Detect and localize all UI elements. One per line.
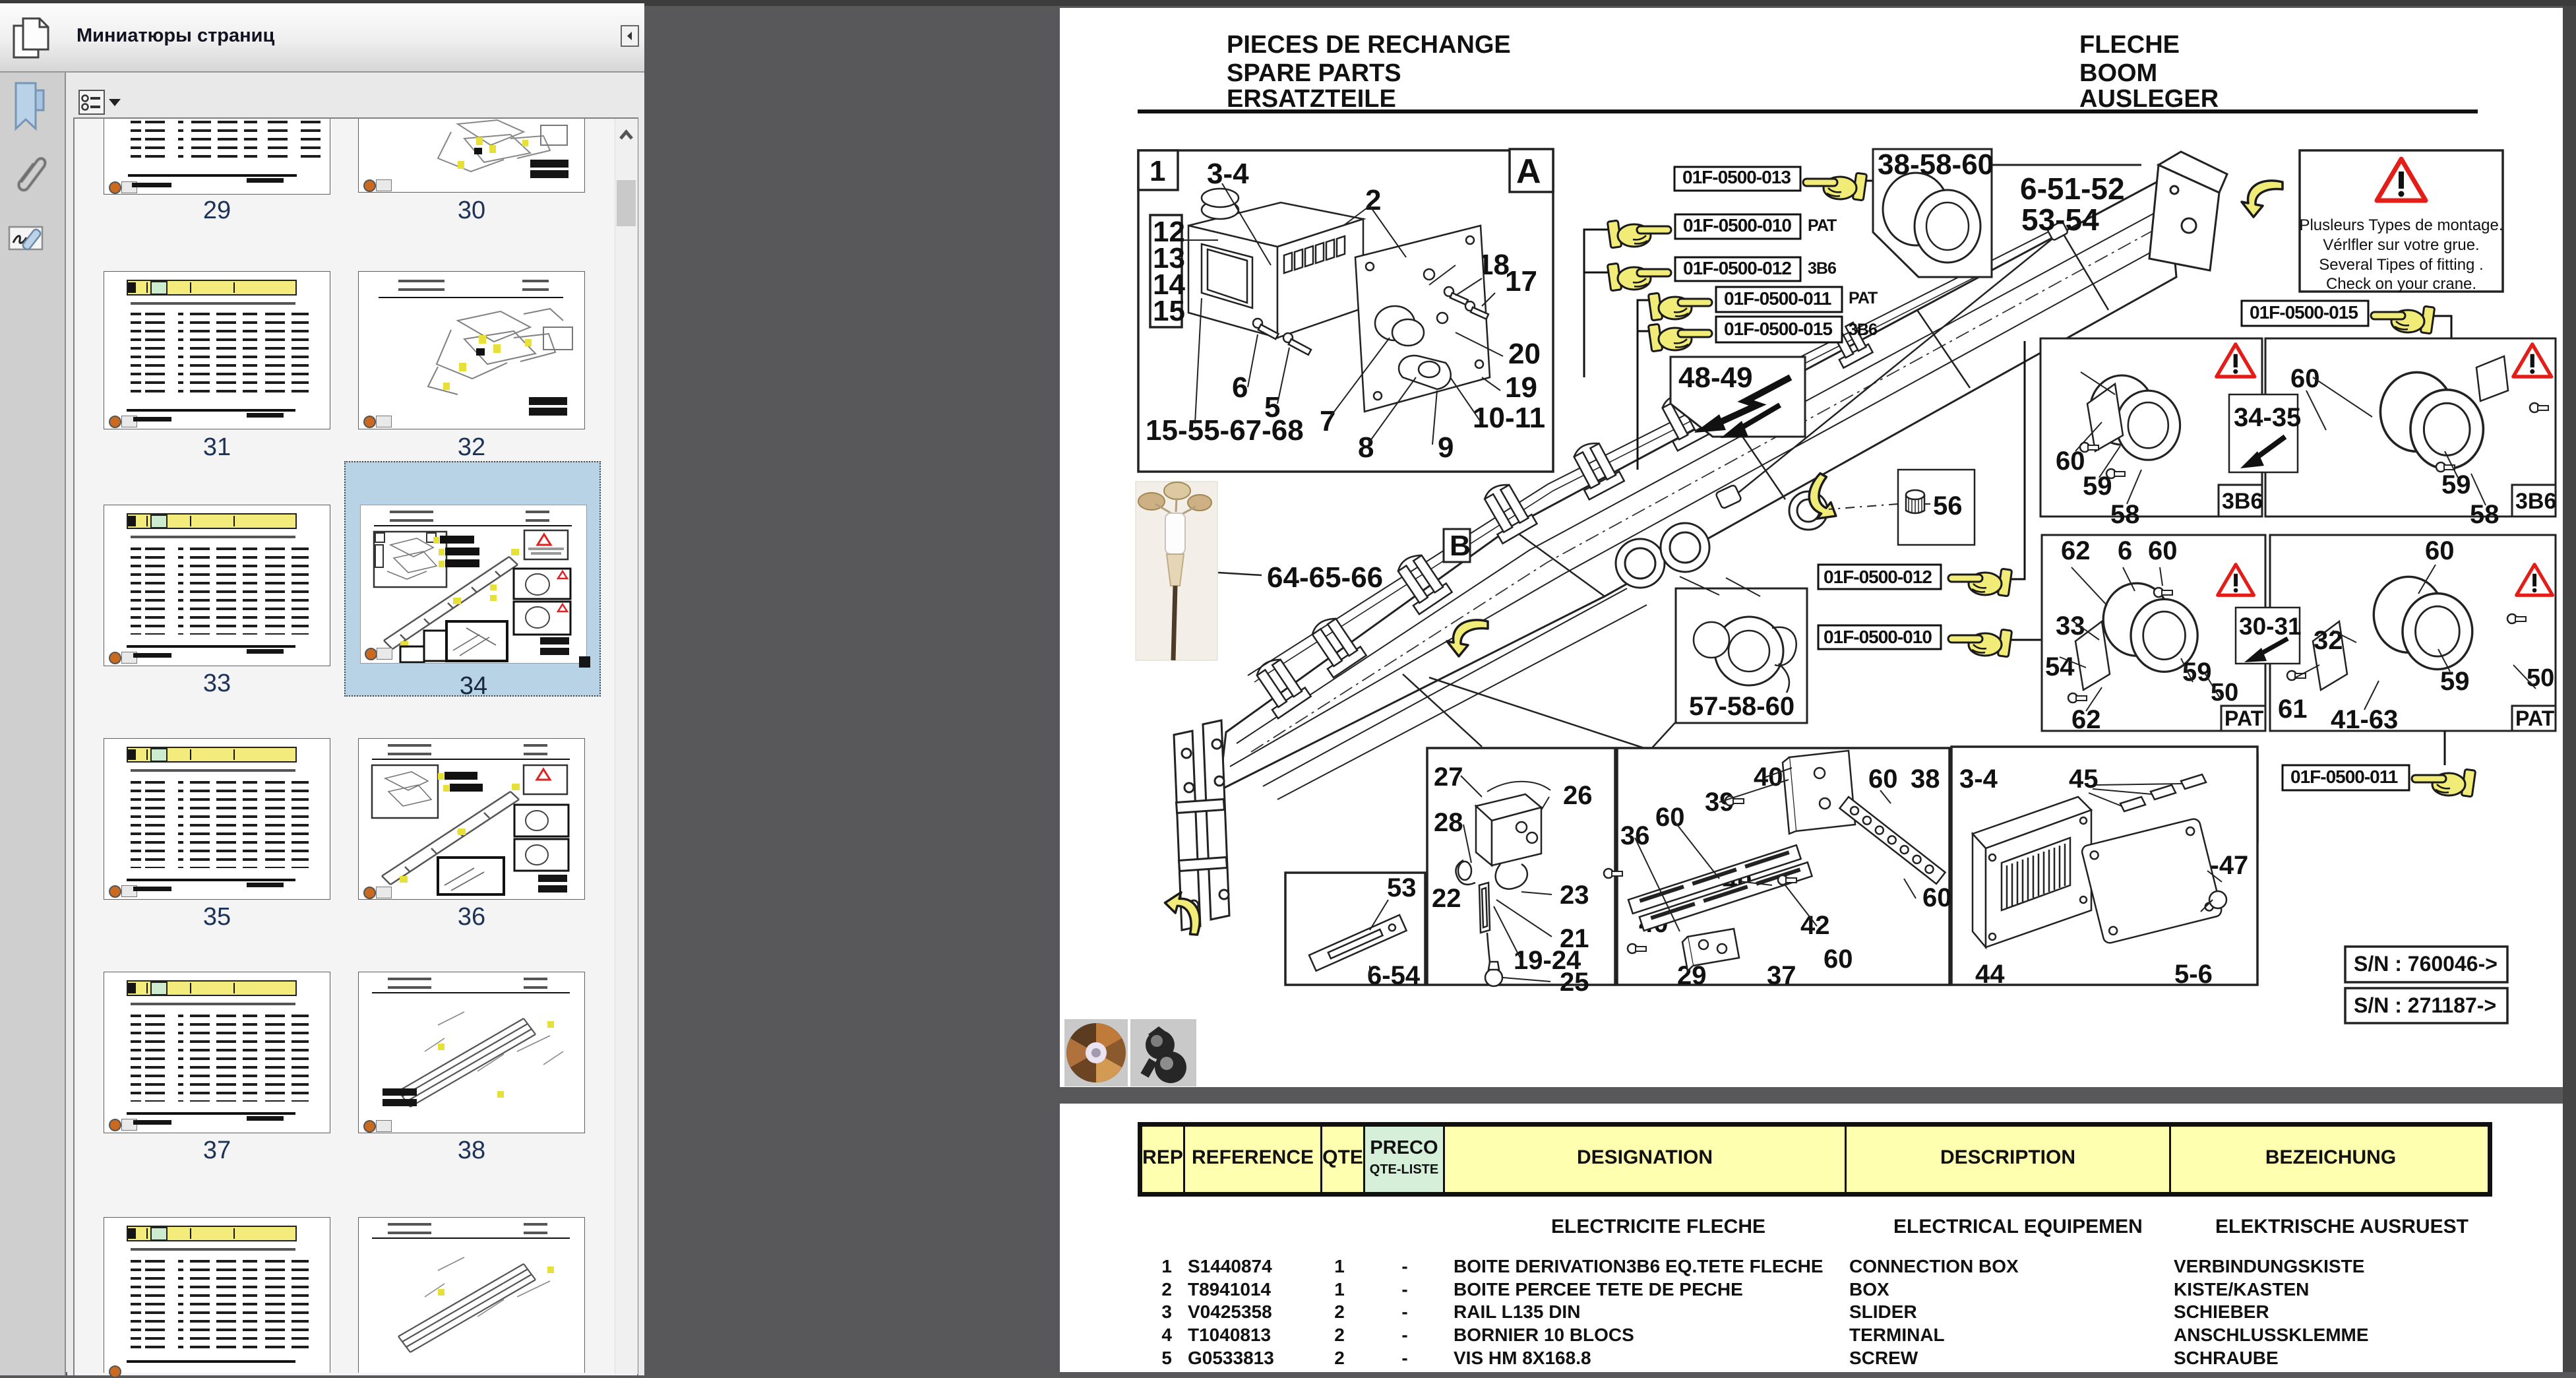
svg-text:3B6: 3B6	[1849, 321, 1877, 339]
svg-text:58: 58	[2470, 500, 2499, 529]
svg-text:64-65-66: 64-65-66	[1267, 561, 1383, 594]
svg-text:59: 59	[2182, 658, 2212, 687]
svg-text:6-51-52: 6-51-52	[2020, 172, 2125, 206]
svg-text:58: 58	[2110, 500, 2140, 529]
svg-text:01F-0500-013: 01F-0500-013	[1682, 167, 1791, 187]
svg-text:38-58-60: 38-58-60	[1878, 148, 1994, 181]
svg-text:17: 17	[1505, 265, 1537, 298]
svg-text:3B6: 3B6	[2515, 489, 2556, 514]
svg-text:01F-0500-012: 01F-0500-012	[1824, 567, 1932, 587]
svg-text:FLECHE: FLECHE	[2079, 31, 2180, 59]
svg-text:6-54: 6-54	[1367, 961, 1421, 990]
svg-text:36: 36	[1620, 821, 1650, 850]
svg-text:19: 19	[1505, 371, 1537, 404]
svg-text:Several Tipes of fitting .: Several Tipes of fitting .	[2319, 256, 2483, 274]
svg-text:37: 37	[1767, 961, 1796, 990]
svg-text:42: 42	[1800, 911, 1830, 940]
svg-text:40: 40	[1754, 763, 1783, 792]
svg-text:59: 59	[2440, 667, 2470, 696]
svg-text:30-31: 30-31	[2239, 613, 2302, 640]
svg-text:22: 22	[1432, 884, 1461, 913]
svg-text:ERSATZTEILE: ERSATZTEILE	[1227, 85, 1396, 113]
svg-text:60: 60	[2425, 536, 2455, 565]
svg-text:01F-0500-015: 01F-0500-015	[2250, 302, 2358, 323]
svg-text:57-58-60: 57-58-60	[1689, 692, 1794, 721]
svg-text:48-49: 48-49	[1678, 361, 1753, 394]
svg-text:PAT: PAT	[1808, 216, 1837, 235]
svg-text:01F-0500-015: 01F-0500-015	[1724, 319, 1832, 339]
svg-text:28: 28	[1434, 808, 1463, 837]
svg-text:15-55-67-68: 15-55-67-68	[1146, 414, 1304, 447]
svg-text:44: 44	[1975, 960, 2005, 989]
svg-text:25: 25	[1560, 968, 1589, 997]
svg-text:60: 60	[2148, 536, 2178, 565]
svg-text:26: 26	[1563, 781, 1593, 810]
svg-text:50: 50	[2211, 679, 2238, 706]
svg-text:3B6: 3B6	[2222, 489, 2263, 514]
svg-text:BOOM: BOOM	[2079, 59, 2157, 87]
svg-text:01F-0500-010: 01F-0500-010	[1683, 215, 1791, 235]
svg-text:01F-0500-010: 01F-0500-010	[1824, 627, 1932, 647]
svg-text:15: 15	[1153, 295, 1185, 327]
svg-text:38: 38	[1911, 765, 1940, 794]
svg-text:5-6: 5-6	[2174, 960, 2213, 989]
svg-text:01F-0500-011: 01F-0500-011	[1724, 288, 1831, 309]
svg-text:SPARE PARTS: SPARE PARTS	[1227, 59, 1401, 87]
svg-text:20: 20	[1508, 338, 1541, 370]
svg-text:32: 32	[2314, 626, 2343, 655]
svg-text:62: 62	[2071, 705, 2101, 734]
svg-text:8: 8	[1358, 431, 1374, 464]
svg-text:27: 27	[1434, 763, 1463, 792]
svg-text:60: 60	[1922, 883, 1952, 912]
svg-text:AUSLEGER: AUSLEGER	[2079, 85, 2219, 113]
svg-text:3-4: 3-4	[1959, 765, 1998, 794]
svg-text:10-11: 10-11	[1473, 402, 1545, 434]
svg-text:60: 60	[1868, 765, 1898, 794]
svg-text:7: 7	[1320, 405, 1335, 437]
svg-text:56: 56	[1933, 491, 1963, 520]
svg-text:1: 1	[1150, 155, 1165, 187]
svg-text:9: 9	[1438, 431, 1454, 464]
svg-text:50: 50	[2527, 664, 2554, 692]
svg-text:PIECES DE RECHANGE: PIECES DE RECHANGE	[1227, 31, 1511, 59]
svg-text:23: 23	[1560, 881, 1589, 910]
svg-text:53: 53	[1387, 873, 1417, 902]
svg-text:34-35: 34-35	[2234, 403, 2301, 432]
svg-text:PAT: PAT	[2224, 706, 2264, 730]
svg-text:62: 62	[2061, 536, 2091, 565]
svg-text:PAT: PAT	[2515, 706, 2555, 730]
svg-text:61: 61	[2278, 695, 2308, 724]
svg-text:60: 60	[2056, 447, 2085, 476]
svg-text:3-4: 3-4	[1207, 158, 1249, 190]
svg-text:S/N : 271187->: S/N : 271187->	[2354, 993, 2496, 1017]
svg-text:53-54: 53-54	[2021, 203, 2099, 237]
svg-text:3B6: 3B6	[1808, 259, 1836, 278]
svg-text:60: 60	[1655, 803, 1685, 832]
svg-text:01F-0500-012: 01F-0500-012	[1683, 258, 1791, 278]
svg-text:Check on your crane.: Check on your crane.	[2326, 275, 2476, 293]
svg-text:PAT: PAT	[1849, 289, 1878, 307]
svg-text:Vérlfler sur votre grue.: Vérlfler sur votre grue.	[2323, 236, 2479, 254]
svg-text:A: A	[1516, 152, 1541, 191]
svg-text:B: B	[1450, 530, 1471, 562]
svg-text:S/N : 760046->: S/N : 760046->	[2354, 952, 2498, 976]
svg-text:6: 6	[1232, 371, 1248, 404]
svg-text:60: 60	[1824, 945, 1853, 974]
svg-text:01F-0500-011: 01F-0500-011	[2290, 767, 2398, 787]
svg-text:6: 6	[2118, 536, 2132, 565]
svg-text:Plusleurs Types de montage.: Plusleurs Types de montage.	[2299, 216, 2503, 234]
